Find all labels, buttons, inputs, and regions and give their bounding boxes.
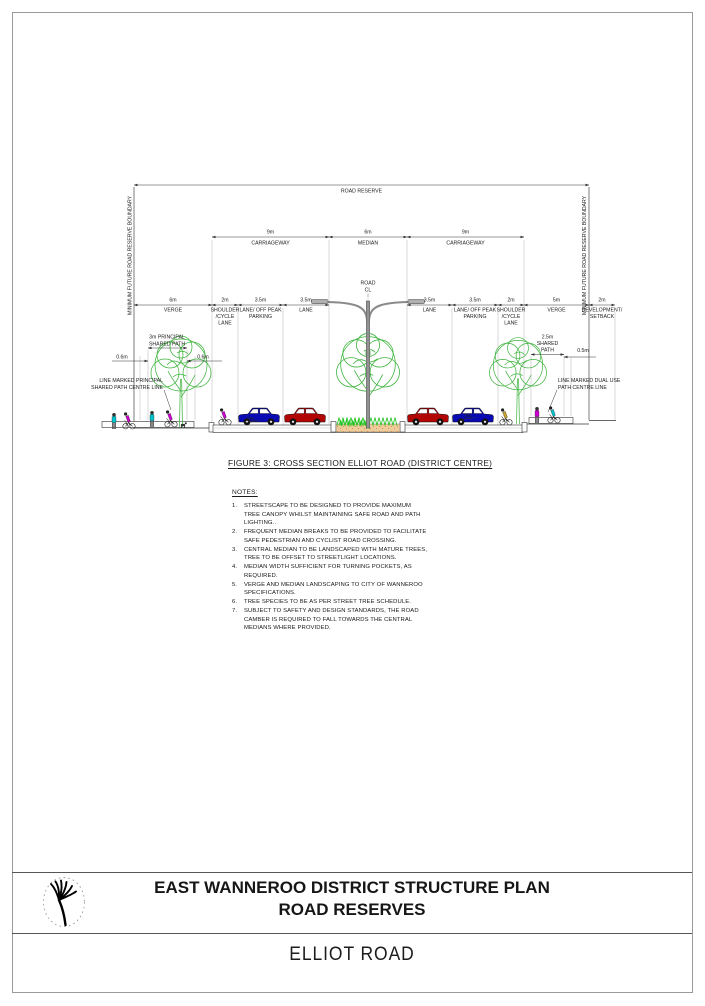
road-reserve-dimension: ROAD RESERVE xyxy=(134,185,589,195)
svg-text:5m: 5m xyxy=(553,298,560,304)
cross-section-drawing: ROAD RESERVE MINIMUM FUTURE ROAD RESERVE… xyxy=(0,0,705,470)
svg-text:SHOULDER: SHOULDER xyxy=(211,308,240,314)
svg-text:LINE MARKED PRINCIPAL: LINE MARKED PRINCIPAL xyxy=(99,378,163,384)
figure-caption: FIGURE 3: CROSS SECTION ELLIOT ROAD (DIS… xyxy=(228,458,492,468)
svg-text:LANE: LANE xyxy=(218,321,232,327)
svg-text:SHARED PATH: SHARED PATH xyxy=(149,342,185,348)
note-item: 5. VERGE AND MEDIAN LANDSCAPING TO CITY … xyxy=(232,581,428,598)
svg-text:0.6m: 0.6m xyxy=(197,355,209,361)
extension-lines xyxy=(140,240,615,425)
svg-text:LANE/ OFF PEAK: LANE/ OFF PEAK xyxy=(454,308,497,314)
title-block-line2: ROAD RESERVES xyxy=(12,900,692,920)
road-centreline-label: ROAD CL xyxy=(361,281,376,294)
svg-text:3.5m: 3.5m xyxy=(424,298,436,304)
svg-text:3.5m: 3.5m xyxy=(300,298,312,304)
boundary-label-left: MINIMUM FUTURE ROAD RESERVE BOUNDARY xyxy=(128,195,134,315)
path-centreline-callout-right: LINE MARKED DUAL USE PATH CENTRE LINE xyxy=(548,378,621,412)
svg-text:3m PRINCIPAL: 3m PRINCIPAL xyxy=(149,335,185,341)
note-item: 7. SUBJECT TO SAFETY AND DESIGN STANDARD… xyxy=(232,607,428,633)
cyclist-shoulder-right xyxy=(500,408,512,425)
svg-text:3.5m: 3.5m xyxy=(469,298,481,304)
svg-text:VERGE: VERGE xyxy=(547,308,566,314)
svg-text:3.5m: 3.5m xyxy=(255,298,267,304)
dim-value: 6m xyxy=(364,230,371,236)
dim-label: CARRIAGEWAY xyxy=(446,241,485,247)
svg-text:2.5m: 2.5m xyxy=(542,335,554,341)
svg-text:PATH CENTRE LINE: PATH CENTRE LINE xyxy=(558,385,607,391)
dim-value: 9m xyxy=(462,230,469,236)
svg-text:LANE: LANE xyxy=(504,321,518,327)
notes-heading: NOTES: xyxy=(232,489,428,496)
svg-text:CL: CL xyxy=(365,288,372,294)
note-item: 4. MEDIAN WIDTH SUFFICIENT FOR TURNING P… xyxy=(232,563,428,580)
svg-text:6m: 6m xyxy=(169,298,176,304)
svg-text:PARKING: PARKING xyxy=(249,314,272,320)
car-lane-right xyxy=(408,408,449,425)
svg-text:2m: 2m xyxy=(598,298,605,304)
cyclist-shoulder-left xyxy=(219,408,231,425)
note-item: 3. CENTRAL MEDIAN TO BE LANDSCAPED WITH … xyxy=(232,546,428,563)
notes-block: NOTES: 1. STREETSCAPE TO BE DESIGNED TO … xyxy=(232,489,428,633)
title-block-line1: EAST WANNEROO DISTRICT STRUCTURE PLAN xyxy=(12,878,692,898)
svg-text:PARKING: PARKING xyxy=(464,314,487,320)
dim-value: 9m xyxy=(267,230,274,236)
carriageway-median-dimensions: 9m CARRIAGEWAY 6m MEDIAN 9m CARRIAGEWAY xyxy=(212,230,524,247)
svg-text:0.6m: 0.6m xyxy=(116,355,128,361)
dim-label: CARRIAGEWAY xyxy=(251,241,290,247)
streetlight-icon xyxy=(312,294,425,429)
svg-text:ROAD: ROAD xyxy=(361,281,376,287)
svg-text:/CYCLE: /CYCLE xyxy=(502,314,521,320)
svg-text:PATH: PATH xyxy=(541,348,554,354)
svg-text:2m: 2m xyxy=(221,298,228,304)
dim-label: MEDIAN xyxy=(358,241,378,247)
svg-text:DEVELOPMENT/: DEVELOPMENT/ xyxy=(582,308,623,314)
note-item: 2. FREQUENT MEDIAN BREAKS TO BE PROVIDED… xyxy=(232,528,428,545)
svg-text:SHOULDER: SHOULDER xyxy=(497,308,526,314)
boundary-label-right: MINIMUM FUTURE ROAD RESERVE BOUNDARY xyxy=(582,195,588,315)
right-kerb xyxy=(522,423,527,433)
car-parked-left xyxy=(239,408,280,425)
path-centreline-callout-left: LINE MARKED PRINCIPAL SHARED PATH CENTRE… xyxy=(91,378,171,410)
svg-text:SHARED PATH CENTRE LINE: SHARED PATH CENTRE LINE xyxy=(91,385,163,391)
lane-dimensions: 6m VERGE 2m SHOULDER /CYCLE LANE 3.5m LA… xyxy=(134,298,623,327)
svg-text:0.5m: 0.5m xyxy=(577,348,589,354)
svg-text:SETBACK: SETBACK xyxy=(590,314,615,320)
title-block-divider xyxy=(12,933,692,934)
drawing-name: ELLIOT ROAD xyxy=(39,944,665,966)
svg-text:LANE/ OFF PEAK: LANE/ OFF PEAK xyxy=(239,308,282,314)
road-reserve-label: ROAD RESERVE xyxy=(341,189,383,195)
note-item: 1. STREETSCAPE TO BE DESIGNED TO PROVIDE… xyxy=(232,502,428,528)
svg-text:LANE: LANE xyxy=(423,308,437,314)
svg-text:2m: 2m xyxy=(507,298,514,304)
sheet: ROAD RESERVE MINIMUM FUTURE ROAD RESERVE… xyxy=(0,0,705,1006)
svg-text:LINE MARKED DUAL USE: LINE MARKED DUAL USE xyxy=(558,378,621,384)
car-parked-right xyxy=(453,408,494,425)
title-block-divider xyxy=(12,872,692,873)
svg-text:/CYCLE: /CYCLE xyxy=(216,314,235,320)
svg-text:VERGE: VERGE xyxy=(164,308,183,314)
note-item: 6. TREE SPECIES TO BE AS PER STREET TREE… xyxy=(232,598,428,607)
svg-text:LANE: LANE xyxy=(299,308,313,314)
car-lane-left xyxy=(285,408,326,425)
svg-text:SHARED: SHARED xyxy=(537,341,559,347)
